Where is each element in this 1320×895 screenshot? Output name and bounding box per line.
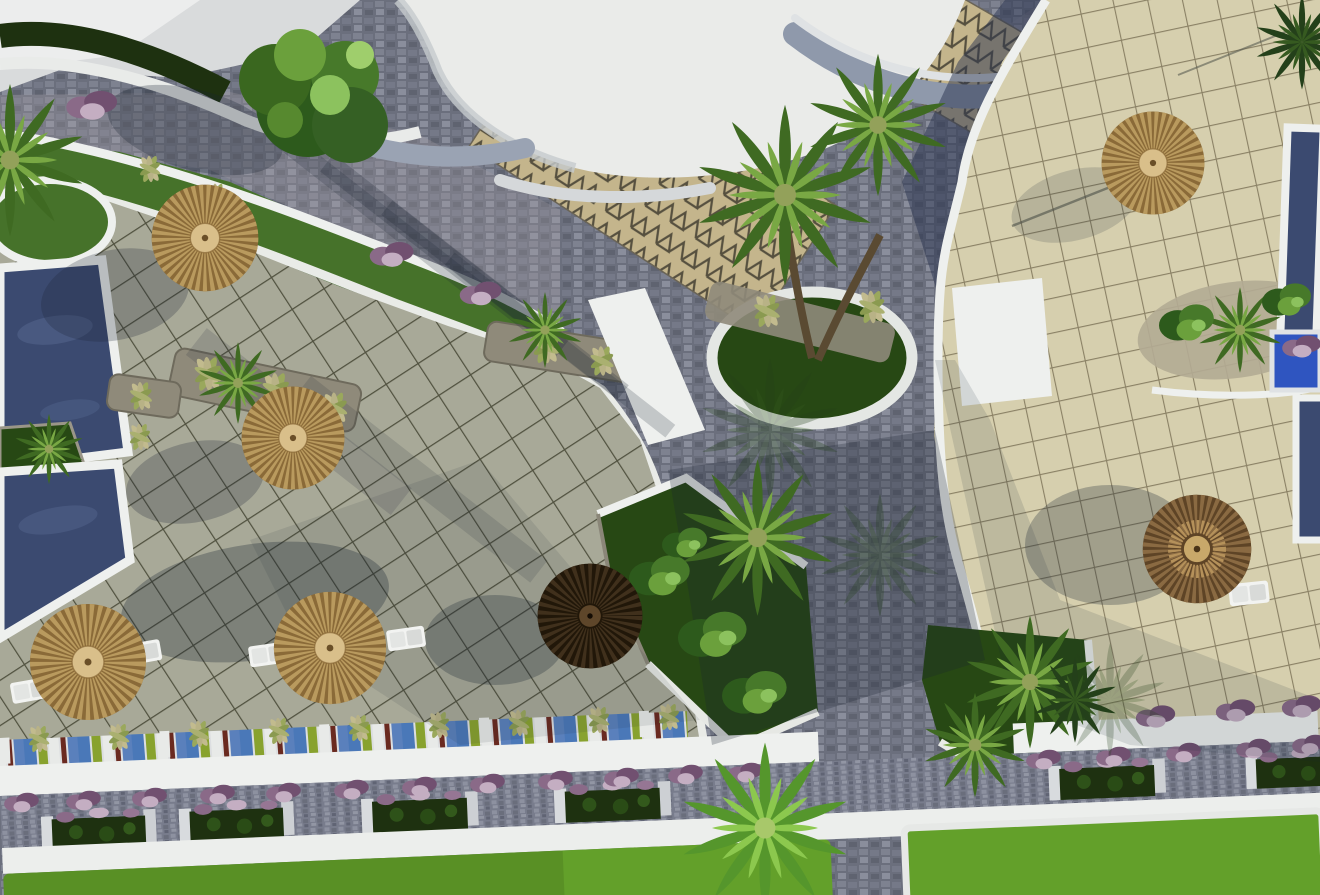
aerial-render — [0, 0, 1320, 895]
round-grass-planter — [0, 180, 112, 264]
front-lawn-right — [904, 811, 1320, 895]
brown-parasol — [1143, 495, 1252, 604]
white-post — [319, 724, 330, 750]
straw-parasol — [274, 592, 386, 704]
straw-parasol — [242, 387, 345, 490]
straw-parasol — [1102, 112, 1205, 215]
dark-parasol — [538, 564, 643, 669]
white-post — [159, 731, 170, 757]
white-post — [0, 738, 10, 764]
edge-pool-south — [1296, 398, 1320, 540]
straw-parasol — [30, 604, 146, 720]
straw-parasol — [152, 185, 259, 292]
render-canvas — [0, 0, 1320, 895]
